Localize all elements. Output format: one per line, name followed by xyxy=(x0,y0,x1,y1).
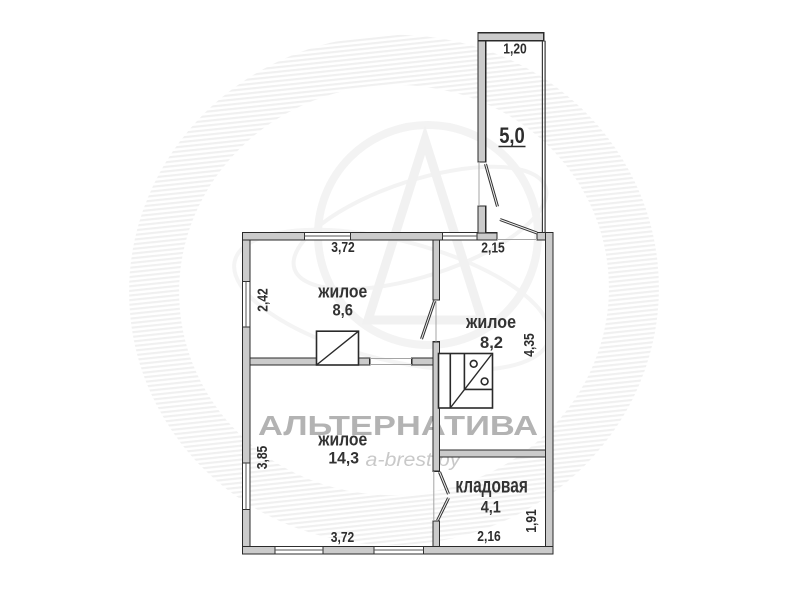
svg-text:5,0: 5,0 xyxy=(499,123,525,148)
svg-text:кладовая: кладовая xyxy=(455,474,528,497)
svg-text:3,85: 3,85 xyxy=(255,446,271,470)
svg-text:1,91: 1,91 xyxy=(524,509,540,533)
svg-text:АЛЬТЕРНАТИВА: АЛЬТЕРНАТИВА xyxy=(258,410,538,441)
svg-text:жилое: жилое xyxy=(317,430,367,450)
svg-text:8,6: 8,6 xyxy=(332,301,353,320)
svg-text:2,16: 2,16 xyxy=(477,529,501,545)
svg-text:2,15: 2,15 xyxy=(481,241,505,257)
svg-text:4,1: 4,1 xyxy=(481,498,501,517)
svg-text:3,72: 3,72 xyxy=(331,240,355,256)
svg-text:3,72: 3,72 xyxy=(331,530,355,546)
svg-text:жилое: жилое xyxy=(317,282,367,302)
svg-text:8,2: 8,2 xyxy=(480,333,503,352)
svg-text:жилое: жилое xyxy=(465,312,516,332)
svg-text:14,3: 14,3 xyxy=(328,449,359,468)
svg-text:4,35: 4,35 xyxy=(522,333,538,357)
svg-text:2,42: 2,42 xyxy=(256,288,272,312)
svg-text:1,20: 1,20 xyxy=(503,42,527,58)
